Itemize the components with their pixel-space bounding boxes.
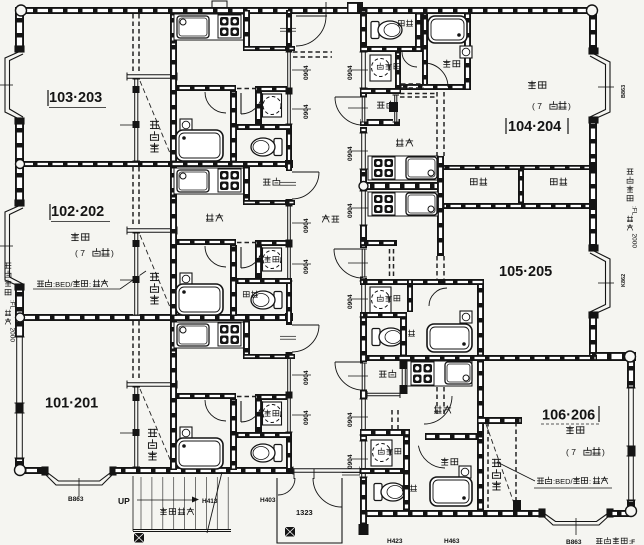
svg-text:0904: 0904 — [303, 104, 310, 119]
svg-text:K862: K862 — [621, 274, 627, 287]
svg-text::BED/: :BED/ — [553, 477, 574, 486]
svg-text:0904: 0904 — [303, 370, 310, 385]
svg-text:H463: H463 — [444, 538, 460, 545]
svg-text:B863: B863 — [621, 85, 627, 98]
svg-text:H403: H403 — [260, 497, 276, 504]
svg-text:106·206: 106·206 — [542, 408, 595, 424]
svg-text:( 7: ( 7 — [532, 101, 542, 111]
svg-text:0904: 0904 — [347, 454, 354, 469]
svg-text:B863: B863 — [68, 496, 84, 503]
svg-text:105·205: 105·205 — [499, 264, 552, 280]
svg-text:( 7: ( 7 — [566, 447, 576, 457]
svg-text:101·201: 101·201 — [45, 396, 98, 412]
svg-text:H423: H423 — [387, 538, 403, 545]
svg-text:0904: 0904 — [303, 218, 310, 233]
svg-text:2000: 2000 — [9, 328, 16, 343]
svg-text::: : — [89, 280, 91, 289]
svg-text:102·202: 102·202 — [51, 204, 104, 220]
svg-text:104·204: 104·204 — [508, 119, 561, 135]
svg-text:0904: 0904 — [303, 259, 310, 274]
svg-text::F: :F — [629, 539, 635, 545]
svg-text:): ) — [602, 447, 605, 457]
svg-text::BED/: :BED/ — [53, 280, 74, 289]
svg-text:0904: 0904 — [303, 65, 310, 80]
svg-text:): ) — [111, 248, 114, 258]
svg-text:0904: 0904 — [347, 412, 354, 427]
svg-text:0904: 0904 — [303, 410, 310, 425]
svg-text:0904: 0904 — [347, 294, 354, 309]
svg-text:H413: H413 — [202, 498, 218, 505]
svg-text:B863: B863 — [566, 539, 582, 545]
svg-text:( 7: ( 7 — [75, 248, 85, 258]
svg-text:0904: 0904 — [347, 65, 354, 80]
svg-text:): ) — [568, 101, 571, 111]
svg-text::: : — [589, 477, 591, 486]
svg-text:103·203: 103·203 — [49, 90, 102, 106]
svg-text::FL: :FL — [9, 300, 16, 310]
svg-text::FL: :FL — [631, 206, 638, 216]
svg-text:0904: 0904 — [347, 146, 354, 161]
svg-text:1323: 1323 — [296, 508, 313, 517]
svg-text:0904: 0904 — [347, 203, 354, 218]
svg-text:2000: 2000 — [631, 234, 638, 249]
svg-text:UP: UP — [118, 496, 130, 506]
